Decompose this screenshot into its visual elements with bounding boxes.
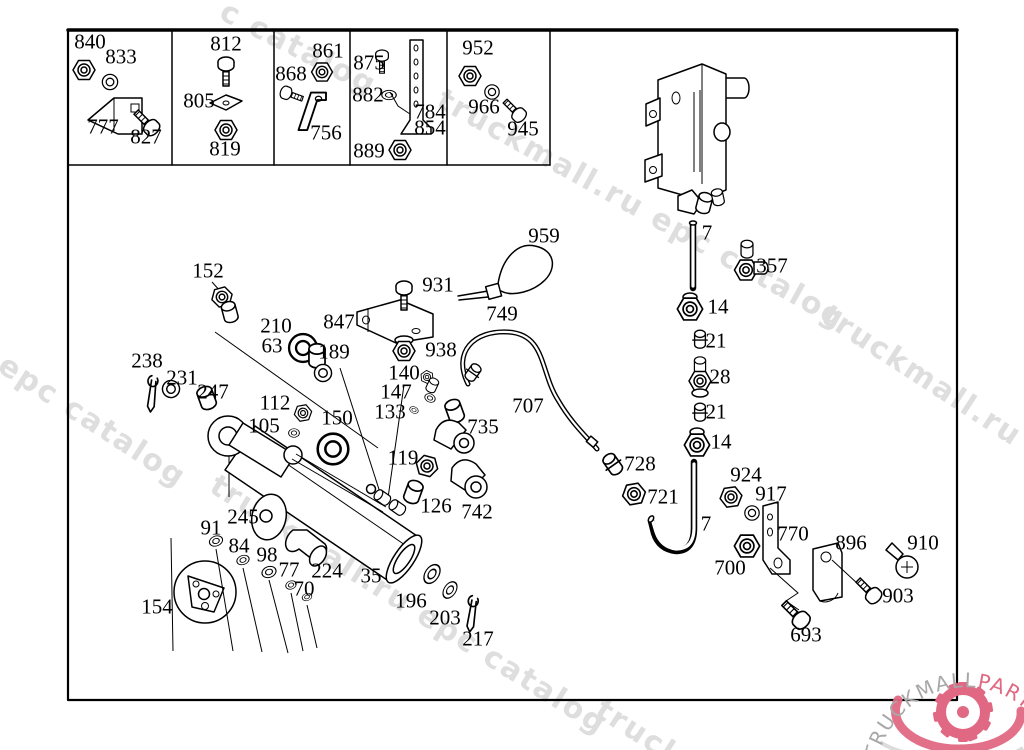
fitting-728 [599,450,626,478]
fitting-112 [293,404,313,422]
bushing-150 [318,434,349,465]
bolt-875 [376,50,389,73]
nut-861 [312,63,333,81]
nut-924 [719,486,743,508]
cable-tie-head [486,283,502,299]
washer-147 [423,392,436,404]
fitting-357-top [741,240,753,258]
bracket-896 [813,543,842,601]
ring-98 [260,564,277,579]
valve-body-port [724,78,749,98]
nut-119 [414,454,440,478]
ferrule-21-upper [693,330,707,348]
upper-middle-parts [210,281,440,415]
ring-84 [236,554,251,567]
bolt-903 [852,574,884,606]
fitting-column [647,221,768,551]
hardware-box-868 [279,63,333,130]
washer-917 [745,506,759,520]
hose-assembly [458,245,598,449]
cotter-pin-217 [465,595,479,632]
washer-196 [421,562,444,587]
nut-889 [389,141,411,160]
bushing-247 [195,384,217,411]
washer-203 [440,579,460,600]
hardware-box-840 [73,61,162,139]
truckmall-logo: TRUCKMALLPARTS [859,668,1024,750]
screw-868 [279,85,305,105]
nut-819 [215,121,237,140]
nut-938 [393,342,415,361]
ring-77 [285,579,298,590]
cable-tie-tail [458,291,488,300]
washer-833 [102,74,117,89]
bolt-693 [778,597,813,632]
exploded-parts-diagram: TRUCKMALLPARTS [0,0,1024,750]
nut-14-upper [677,298,702,320]
lower-right-hardware [719,486,918,632]
nut-14-lower [684,434,709,456]
plate-805 [210,95,242,110]
rod-ball-end [284,446,302,464]
ferrule-21-lower [693,403,707,421]
nut-700 [734,535,759,557]
washer-966 [485,85,499,99]
bracket-777 [88,98,142,134]
cable-tie-loop [498,245,552,293]
fitting-28 [689,372,711,391]
ring-70 [301,592,313,602]
ring-231 [161,379,182,400]
bolt-812 [218,57,234,86]
pipe-7-top [690,221,697,225]
parts-diagram-page: c catalogtruckmall.ru epc catalogl epc c… [0,0,1024,750]
ring-91 [208,534,224,548]
washer-189 [314,364,331,381]
hardware-box-812 [210,57,242,140]
hardware-box-875 [376,40,431,160]
valve-body [645,64,749,215]
valve-body-boss [714,123,730,141]
washer-105 [289,429,300,438]
plug-126 [402,478,424,505]
nut-840 [73,61,95,80]
bracket-770 [763,502,790,574]
nut-721 [621,482,647,506]
cotter-pin-238 [146,375,158,412]
washer-133 [409,405,420,415]
hardware-box-952 [459,67,529,125]
bolt-945 [500,96,529,125]
nut-952 [459,67,481,86]
